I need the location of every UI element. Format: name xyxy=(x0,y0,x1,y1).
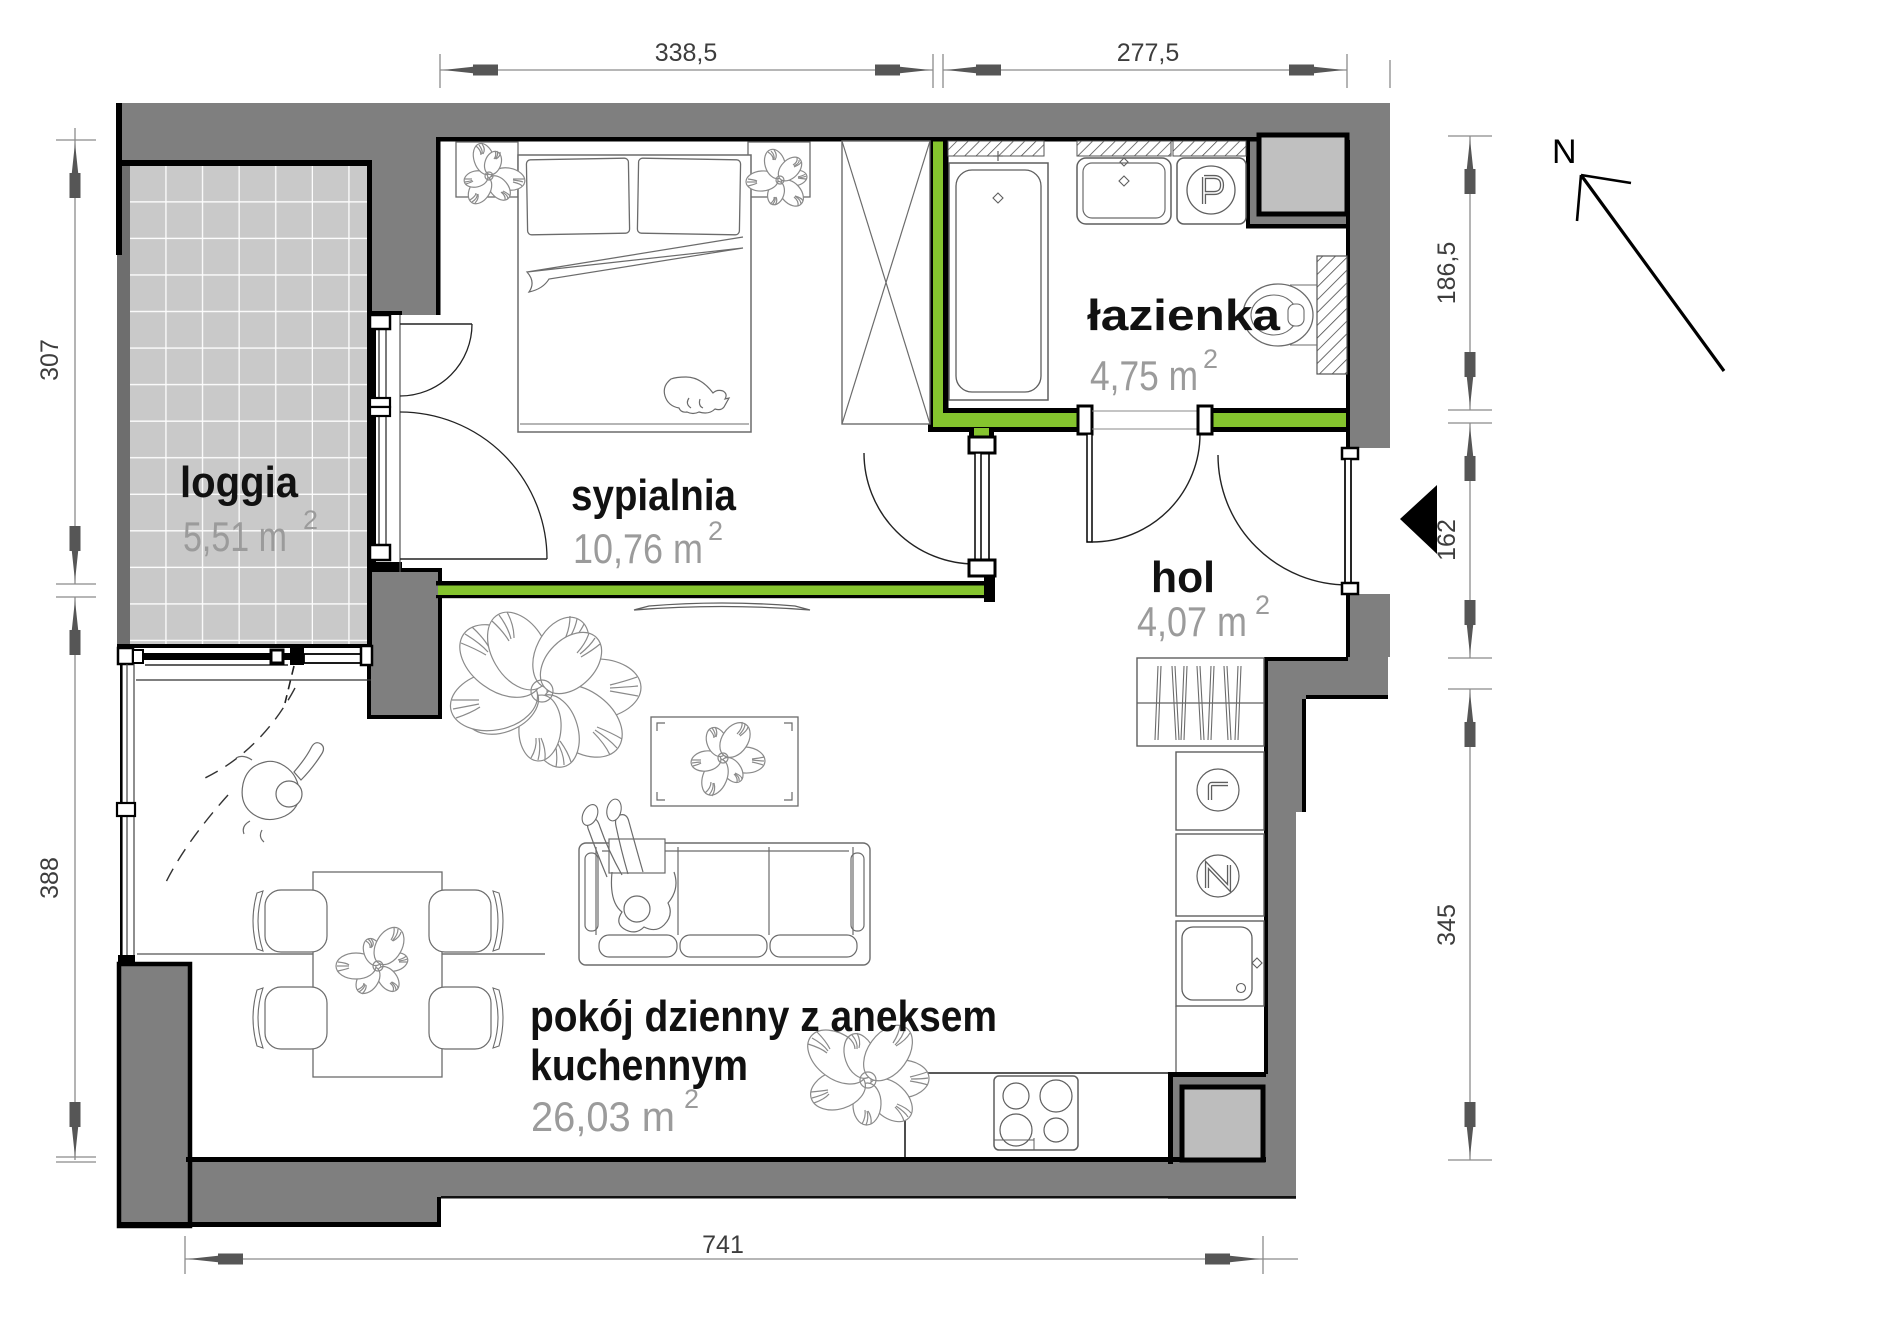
svg-text:kuchennym: kuchennym xyxy=(530,1041,748,1090)
svg-text:2: 2 xyxy=(1255,590,1270,620)
svg-text:26,03 m: 26,03 m xyxy=(531,1093,675,1140)
svg-text:N: N xyxy=(1552,133,1577,171)
svg-text:5,51 m: 5,51 m xyxy=(183,513,287,560)
svg-text:277,5: 277,5 xyxy=(1117,39,1180,67)
svg-text:388: 388 xyxy=(36,857,64,899)
svg-text:338,5: 338,5 xyxy=(655,39,718,67)
svg-text:loggia: loggia xyxy=(180,458,298,507)
svg-text:307: 307 xyxy=(36,339,64,381)
svg-text:741: 741 xyxy=(702,1231,744,1259)
svg-text:2: 2 xyxy=(303,505,318,535)
svg-text:2: 2 xyxy=(708,516,723,546)
svg-text:hol: hol xyxy=(1151,553,1215,602)
svg-text:4,75 m: 4,75 m xyxy=(1090,352,1198,399)
svg-text:2: 2 xyxy=(684,1084,699,1114)
svg-text:4,07 m: 4,07 m xyxy=(1137,598,1247,645)
svg-text:sypialnia: sypialnia xyxy=(571,471,736,520)
svg-text:186,5: 186,5 xyxy=(1433,242,1461,305)
svg-text:162: 162 xyxy=(1433,519,1461,561)
svg-text:345: 345 xyxy=(1433,904,1461,946)
svg-text:pokój dzienny z aneksem: pokój dzienny z aneksem xyxy=(530,992,997,1041)
svg-text:2: 2 xyxy=(1203,344,1218,374)
svg-text:10,76 m: 10,76 m xyxy=(573,525,703,572)
svg-text:łazienka: łazienka xyxy=(1087,291,1281,340)
